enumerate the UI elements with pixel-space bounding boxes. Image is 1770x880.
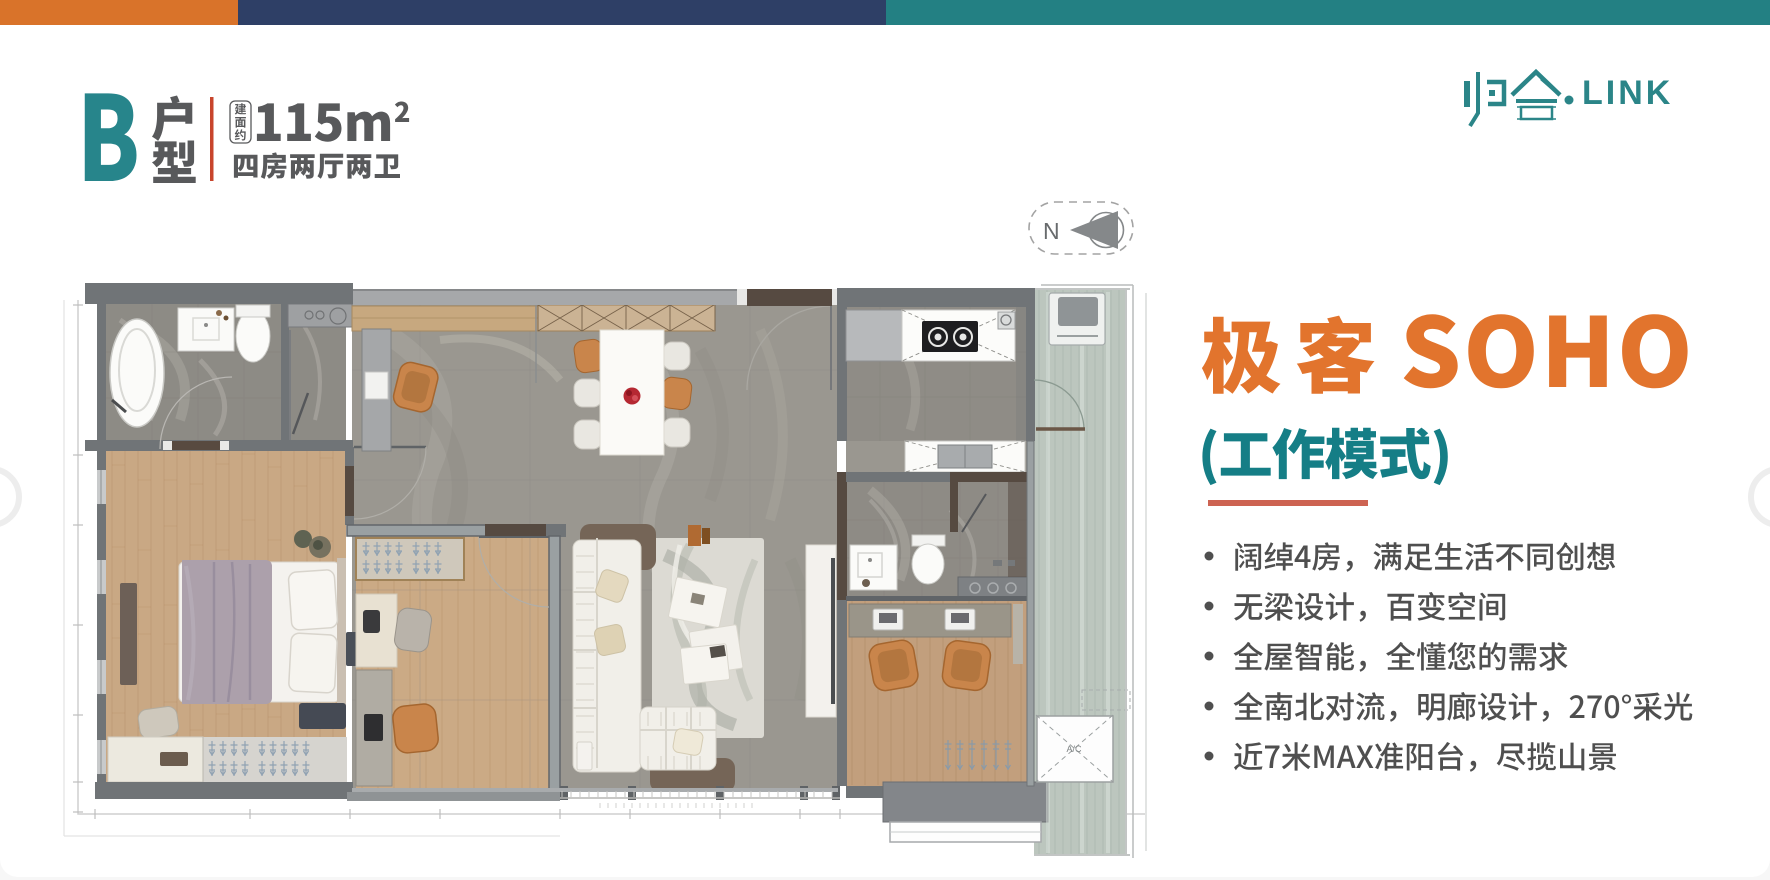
svg-text:N: N xyxy=(1043,218,1060,244)
svg-text:A/C: A/C xyxy=(1066,744,1082,754)
svg-text:LINK: LINK xyxy=(1582,74,1673,112)
